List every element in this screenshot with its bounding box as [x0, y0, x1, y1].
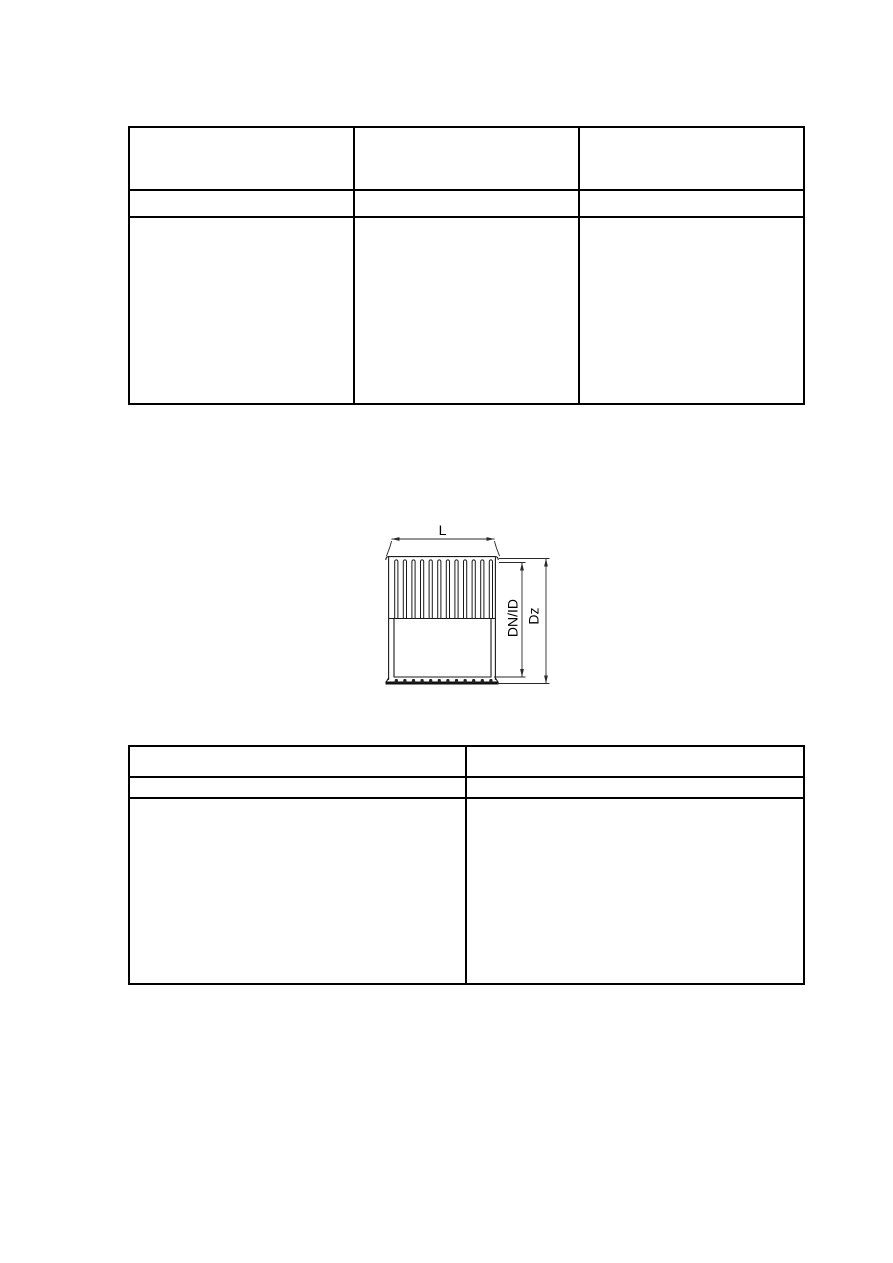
- arrowhead-up-icon: [544, 559, 548, 567]
- table-row: [129, 746, 804, 777]
- table-cell: [579, 217, 804, 404]
- table-cell: [354, 127, 579, 190]
- arrowhead-up-icon: [520, 563, 524, 571]
- table-cell: [466, 777, 804, 798]
- table-cell: [129, 746, 466, 777]
- table-cell: [466, 798, 804, 984]
- corrugation-ribs: [395, 560, 493, 619]
- table-row: [129, 127, 804, 190]
- pipe-coupling-drawing: L DN/ID Dz: [370, 515, 560, 700]
- table-cell: [129, 777, 466, 798]
- table-cell: [354, 190, 579, 217]
- table-cell: [466, 746, 804, 777]
- coupling-body: [386, 557, 499, 683]
- arrowhead-down-icon: [520, 669, 524, 677]
- table-cell: [579, 190, 804, 217]
- table-row: [129, 777, 804, 798]
- table-cell: [129, 798, 466, 984]
- table-cell: [354, 217, 579, 404]
- table-cell: [129, 127, 354, 190]
- arrowhead-right-icon: [487, 537, 495, 541]
- table-cell: [129, 190, 354, 217]
- label-Dz: Dz: [526, 607, 542, 624]
- spec-table-bottom: [128, 745, 805, 985]
- arrowhead-down-icon: [544, 676, 548, 684]
- dimension-L: L: [386, 522, 499, 556]
- spec-table-top: [128, 126, 805, 405]
- label-L: L: [439, 522, 447, 538]
- table-row: [129, 190, 804, 217]
- arrowhead-left-icon: [392, 537, 400, 541]
- table-cell: [129, 217, 354, 404]
- table-cell: [579, 127, 804, 190]
- table-row: [129, 798, 804, 984]
- table-row: [129, 217, 804, 404]
- label-DN-ID: DN/ID: [505, 599, 521, 637]
- document-page: L DN/ID Dz: [0, 0, 893, 1263]
